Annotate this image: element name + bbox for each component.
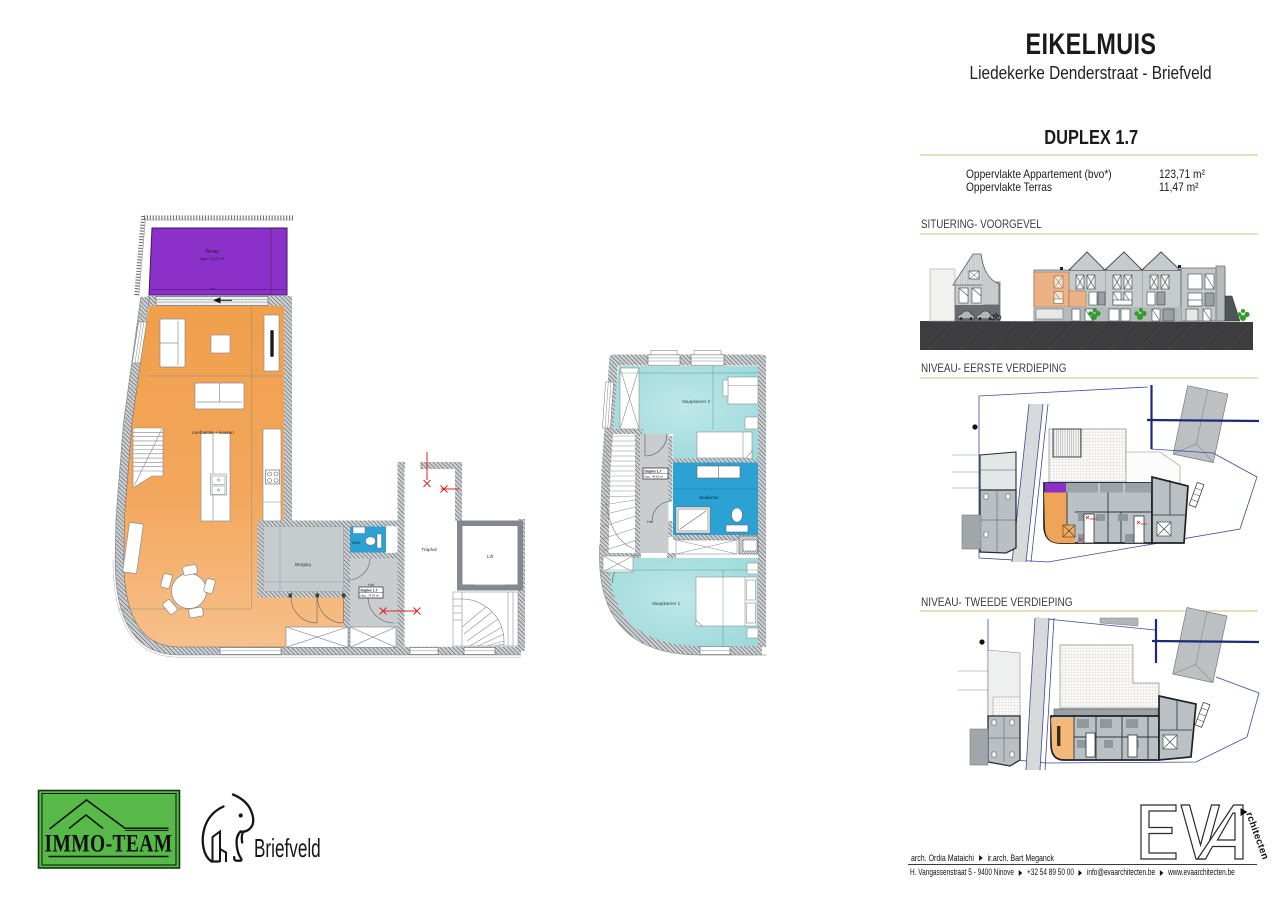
svg-text:Lift: Lift	[487, 554, 494, 559]
svg-text:Duplex 1.7: Duplex 1.7	[645, 470, 662, 474]
svg-text:Opp.: 74,53 m²: Opp.: 74,53 m²	[361, 594, 380, 598]
svg-text:IMMO-TEAM: IMMO-TEAM	[44, 829, 172, 857]
svg-text:rchitecten: rchitecten	[1243, 811, 1270, 862]
svg-text:Terras: Terras	[205, 249, 219, 255]
svg-text:Hal: Hal	[368, 583, 374, 587]
svg-text:Slaapkamer 1: Slaapkamer 1	[652, 601, 681, 606]
svg-text:4,78: 4,78	[209, 287, 215, 291]
svg-text:Duplex 1.7: Duplex 1.7	[361, 589, 378, 593]
svg-text:Berging: Berging	[295, 562, 311, 567]
svg-text:Briefveld: Briefveld	[254, 833, 321, 863]
svg-text:Slaapkamer 2: Slaapkamer 2	[682, 399, 711, 404]
svg-text:Opp.: 11,47 m²: Opp.: 11,47 m²	[200, 257, 225, 261]
svg-text:Traphal: Traphal	[421, 547, 436, 552]
svg-text:Badkamer: Badkamer	[699, 495, 719, 500]
svg-text:Leefruimte + keuken: Leefruimte + keuken	[192, 430, 234, 435]
svg-text:Opp.: 49,18 m²: Opp.: 49,18 m²	[645, 475, 664, 479]
svg-text:Toilet: Toilet	[352, 541, 362, 545]
